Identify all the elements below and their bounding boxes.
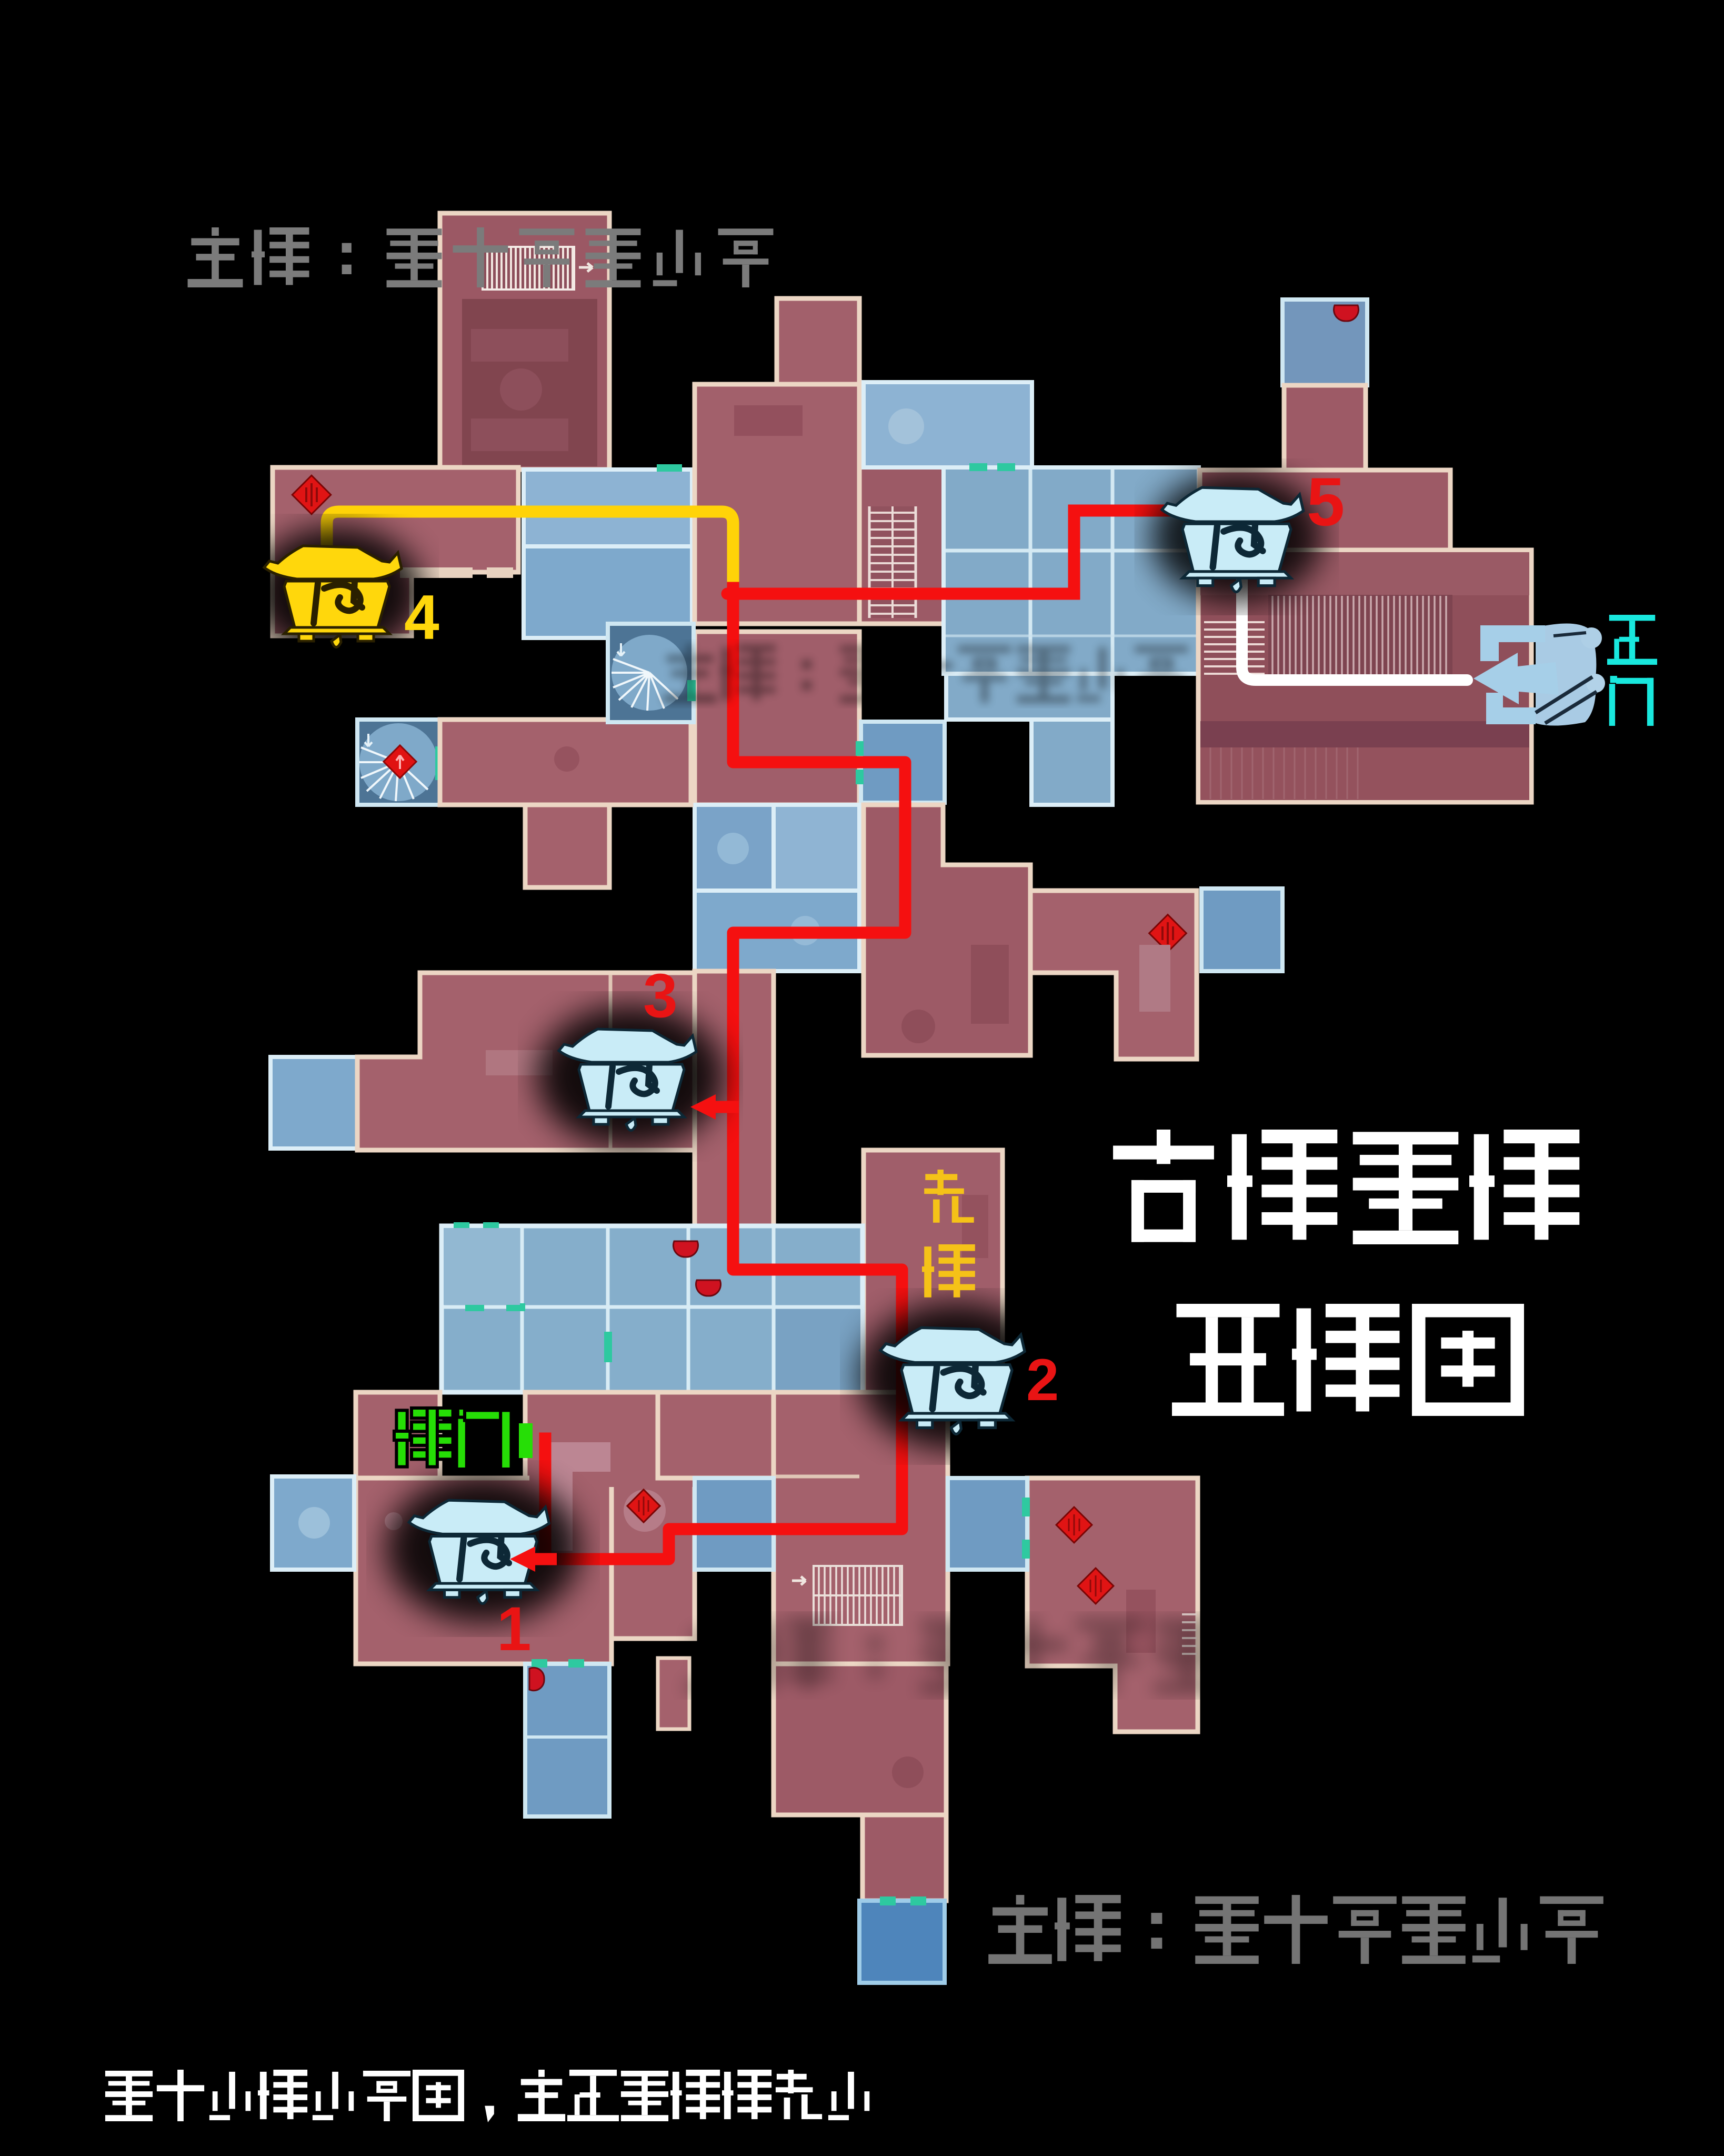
svg-text:2: 2 (1026, 1347, 1059, 1413)
svg-text:5: 5 (1307, 463, 1345, 540)
svg-text:3: 3 (643, 961, 678, 1031)
svg-text:4: 4 (404, 582, 439, 653)
svg-text:1: 1 (497, 1594, 532, 1664)
